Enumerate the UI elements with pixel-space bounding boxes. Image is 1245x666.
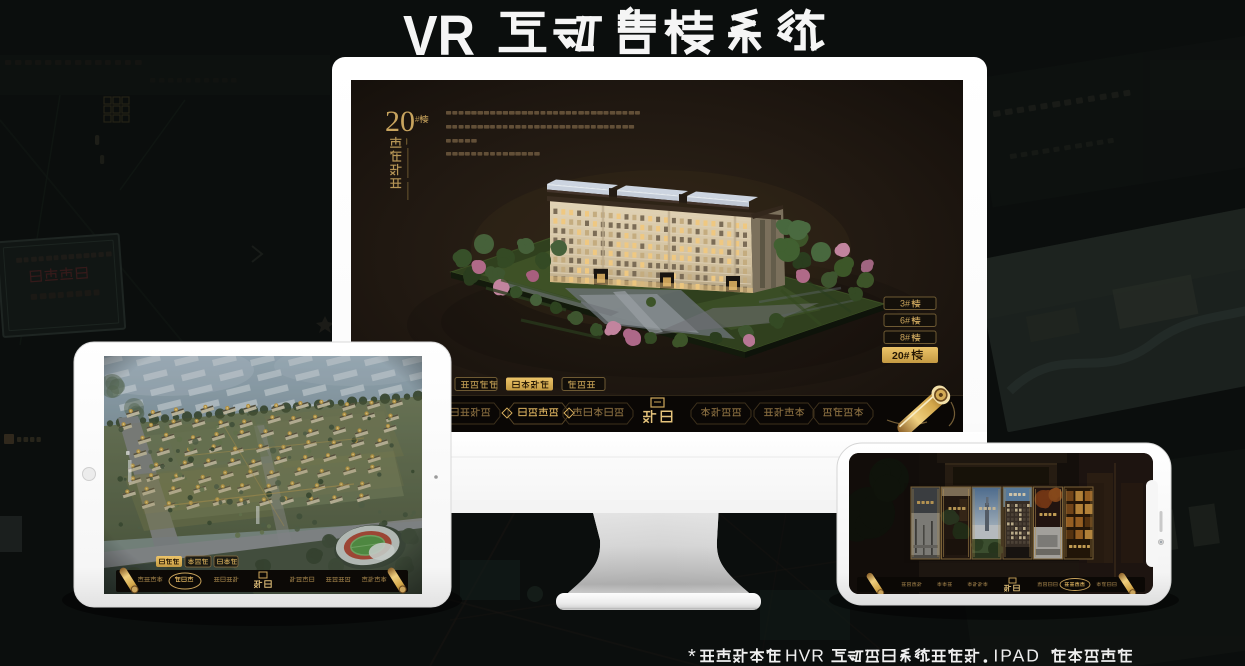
svg-text:*: * — [688, 646, 696, 666]
svg-text:HVR: HVR — [785, 646, 825, 666]
svg-text:IPAD: IPAD — [993, 646, 1041, 666]
